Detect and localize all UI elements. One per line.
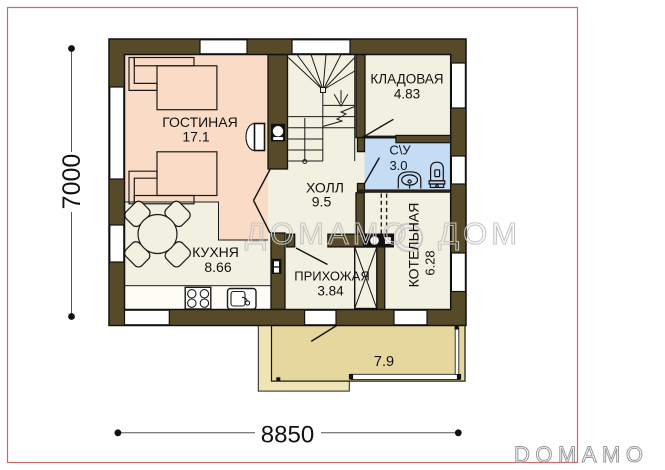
svg-text:3.0: 3.0 xyxy=(389,158,407,173)
svg-text:КЛАДОВАЯ: КЛАДОВАЯ xyxy=(370,72,443,87)
svg-text:9.5: 9.5 xyxy=(312,194,332,210)
svg-text:6.28: 6.28 xyxy=(423,250,438,275)
svg-text:DOMAMO: DOMAMO xyxy=(514,442,648,467)
svg-text:8850: 8850 xyxy=(261,422,314,449)
svg-text:ДОМАМО ДОМ: ДОМАМО ДОМ xyxy=(245,216,521,251)
svg-text:17.1: 17.1 xyxy=(182,129,209,145)
svg-text:7.9: 7.9 xyxy=(374,354,394,370)
svg-text:3.84: 3.84 xyxy=(317,284,344,299)
svg-text:4.83: 4.83 xyxy=(394,87,420,102)
svg-text:С\У: С\У xyxy=(389,143,411,158)
svg-text:КУХНЯ: КУХНЯ xyxy=(192,244,239,260)
svg-text:8.66: 8.66 xyxy=(204,259,231,275)
svg-text:7000: 7000 xyxy=(58,154,86,210)
svg-text:ПРИХОЖАЯ: ПРИХОЖАЯ xyxy=(294,269,370,284)
